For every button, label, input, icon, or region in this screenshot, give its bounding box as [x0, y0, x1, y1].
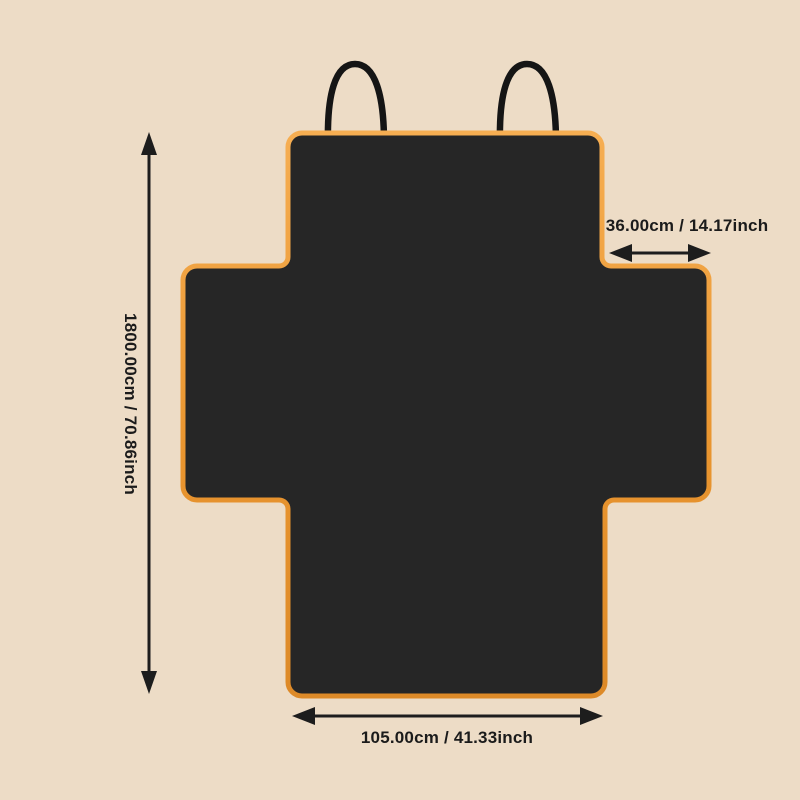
height-dimension-label: 1800.00cm / 70.86inch [120, 313, 140, 495]
top-flap-width-dimension-label: 36.00cm / 14.17inch [606, 216, 769, 236]
headrest-strap-right [500, 64, 556, 142]
headrest-strap-left [328, 64, 384, 142]
height-measure-arrow-icon [141, 132, 157, 694]
bottom-width-measure-arrow-icon [292, 707, 603, 725]
bottom-flap-width-dimension-label: 105.00cm / 41.33inch [361, 728, 533, 748]
top-width-measure-arrow-icon [609, 244, 711, 262]
product-dimension-diagram: 1800.00cm / 70.86inch 36.00cm / 14.17inc… [0, 0, 800, 800]
